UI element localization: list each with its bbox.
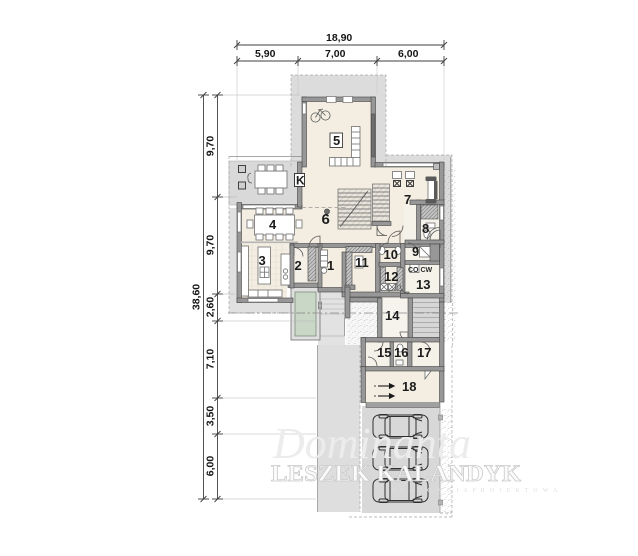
svg-text:3,50: 3,50 (205, 406, 217, 427)
svg-text:2: 2 (295, 258, 302, 273)
svg-text:6: 6 (322, 211, 330, 228)
svg-text:6,00: 6,00 (205, 456, 217, 477)
svg-text:17: 17 (417, 345, 431, 360)
svg-text:9: 9 (412, 244, 419, 259)
svg-text:12: 12 (384, 269, 398, 284)
svg-text:14: 14 (385, 308, 400, 323)
svg-text:6,00: 6,00 (398, 48, 419, 60)
svg-text:10: 10 (384, 247, 398, 262)
svg-text:9,70: 9,70 (205, 136, 217, 157)
svg-text:LESZEK KALANDYK: LESZEK KALANDYK (271, 461, 521, 486)
svg-text:7,10: 7,10 (205, 349, 217, 370)
svg-text:8: 8 (422, 221, 429, 236)
svg-text:13: 13 (416, 277, 430, 292)
svg-text:5,90: 5,90 (255, 48, 276, 60)
svg-text:15: 15 (377, 345, 391, 360)
svg-text:1: 1 (327, 258, 334, 273)
svg-text:18,90: 18,90 (326, 32, 352, 44)
svg-text:K: K (296, 174, 305, 188)
svg-text:P R A C O W N I A P R O J E K: P R A C O W N I A P R O J E K T O W A (392, 488, 559, 494)
svg-text:2,60: 2,60 (205, 297, 217, 318)
svg-text:9,70: 9,70 (205, 235, 217, 256)
svg-text:7,00: 7,00 (325, 48, 346, 60)
svg-text:11: 11 (355, 255, 369, 270)
svg-text:CO CW: CO CW (408, 267, 433, 274)
svg-text:18: 18 (402, 379, 416, 394)
svg-text:4: 4 (269, 217, 277, 232)
svg-text:5: 5 (333, 133, 340, 148)
svg-text:38,60: 38,60 (191, 284, 203, 310)
svg-text:7: 7 (404, 192, 411, 207)
svg-text:16: 16 (394, 345, 408, 360)
svg-text:3: 3 (259, 253, 266, 268)
